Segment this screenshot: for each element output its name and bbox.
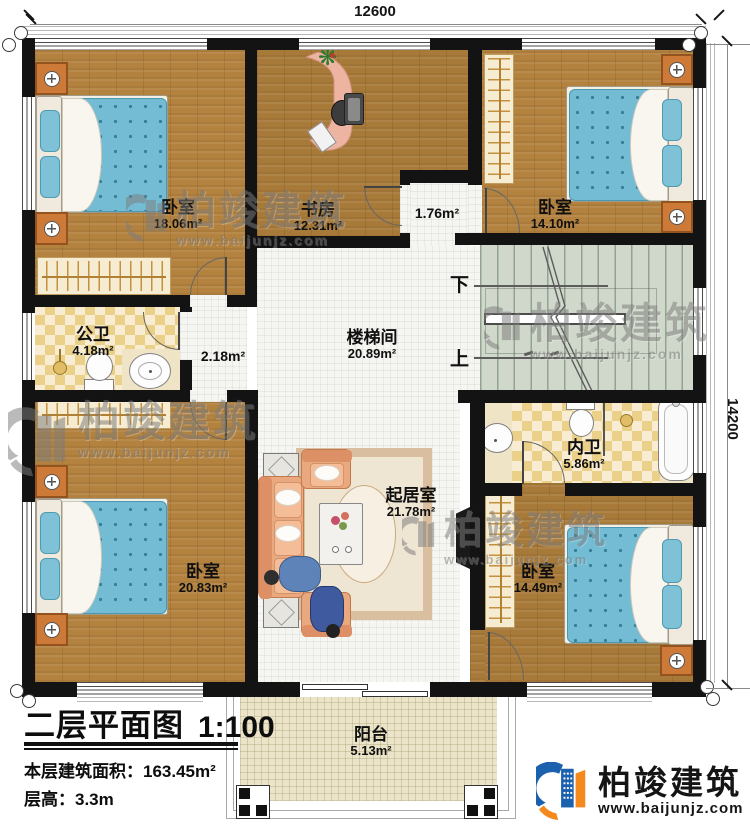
lamp-icon — [44, 221, 60, 237]
door-opening — [190, 295, 227, 307]
wardrobe-rail — [42, 414, 166, 416]
window — [693, 403, 706, 473]
pillow — [40, 558, 60, 600]
door-opening — [468, 185, 482, 233]
room-label-study: 书房 12.31m² — [268, 200, 368, 233]
wardrobe-bedroom-bl — [37, 399, 171, 429]
toilet-bowl — [569, 409, 594, 437]
column-mark — [484, 805, 495, 816]
room-label-stairwell: 楼梯间 20.89m² — [322, 328, 422, 361]
bathtub — [658, 395, 695, 481]
monitor — [344, 93, 364, 125]
column-mark — [256, 805, 267, 816]
room-area: 5.86m² — [544, 457, 624, 471]
room-area: 5.13m² — [321, 744, 421, 758]
bathtub-basin — [664, 404, 688, 474]
corner-marker-icon — [2, 38, 16, 52]
room-label-public-bath: 公卫 4.18m² — [53, 325, 133, 358]
wardrobe-bedroom-tl — [37, 257, 171, 295]
lamp-icon — [44, 474, 60, 490]
brand-logo-icon — [536, 762, 592, 820]
room-name: 卧室 — [505, 198, 605, 217]
plant-flower-dot — [330, 53, 335, 58]
room-name: 卧室 — [128, 198, 228, 217]
column-mark — [239, 805, 250, 816]
person-head — [326, 624, 340, 638]
room-area: 12.31m² — [268, 219, 368, 233]
drawing-title: 二层平面图 — [24, 700, 184, 745]
wall-interior — [565, 483, 706, 496]
window-sill-band-top — [22, 26, 706, 38]
room-label-bedroom-tr: 卧室 14.10m² — [505, 198, 605, 231]
dimension-line-right — [727, 45, 728, 688]
room-area: 14.10m² — [505, 217, 605, 231]
room-label-balcony: 阳台 5.13m² — [321, 725, 421, 758]
balcony-column — [236, 785, 270, 819]
floor-threshold-bedroom-br — [470, 630, 485, 682]
window — [527, 682, 652, 697]
title-block-row: 二层平面图 1:100 — [24, 700, 275, 745]
room-area: 18.06m² — [128, 217, 228, 231]
flower-dot — [339, 522, 347, 530]
wall-interior — [455, 233, 706, 245]
room-name: 书房 — [268, 200, 368, 219]
dimension-height: 14200 — [723, 389, 741, 449]
pillow — [662, 585, 682, 629]
sink — [129, 353, 171, 389]
window-sill-band-right — [706, 43, 716, 683]
wall-interior — [458, 390, 706, 403]
wardrobe-bedroom-br — [485, 488, 515, 628]
room-label-living-room: 起居室 21.78m² — [361, 486, 461, 519]
dimension-width: 12600 — [300, 3, 450, 20]
room-label-hall-small: 1.76m² — [406, 206, 468, 220]
wall-interior — [245, 390, 258, 684]
door-opening — [190, 390, 227, 402]
sink-drain-dot — [149, 370, 152, 373]
floor-height-label: 层高： — [24, 790, 75, 809]
room-area: 4.18m² — [53, 344, 133, 358]
nightstand — [35, 465, 68, 498]
dimension-line-top — [30, 24, 702, 25]
nightstand — [660, 645, 693, 676]
room-area: 2.18m² — [192, 349, 254, 363]
stair-up-label: 上 — [450, 344, 469, 371]
lamp-icon — [44, 71, 60, 87]
room-area: 1.76m² — [406, 206, 468, 220]
floor-area-label: 本层建筑面积： — [24, 762, 143, 781]
double-bed-bedroom-bl — [35, 498, 168, 615]
corner-marker-icon — [10, 684, 24, 698]
window — [22, 97, 35, 210]
throw-pillow — [275, 489, 301, 506]
nightstand — [35, 613, 68, 646]
wall-interior — [245, 50, 257, 307]
door-leaf — [488, 632, 490, 680]
window — [22, 313, 35, 380]
person-lying — [279, 556, 321, 592]
nightstand — [35, 62, 68, 95]
lamp-icon — [669, 62, 685, 78]
room-label-bedroom-br: 卧室 14.49m² — [488, 562, 588, 595]
window — [693, 527, 706, 640]
room-label-hall-mid: 2.18m² — [192, 349, 254, 363]
corner-marker-icon — [694, 26, 708, 40]
room-name: 楼梯间 — [322, 328, 422, 347]
coffee-table — [319, 503, 363, 565]
pillow — [40, 512, 60, 554]
nightstand — [661, 201, 693, 233]
armchair — [301, 449, 351, 489]
throw-pillow — [314, 465, 340, 481]
flower-dot — [341, 512, 349, 520]
window — [693, 88, 706, 200]
dimension-tick — [695, 13, 706, 24]
stair-break-line — [480, 243, 695, 393]
floor-stairwell-hall — [257, 246, 482, 392]
window-sill-band-bottom-right — [527, 697, 652, 704]
room-label-bedroom-bl: 卧室 20.83m² — [153, 562, 253, 595]
pillow — [662, 539, 682, 583]
corner-marker-icon — [706, 692, 720, 706]
title-underline-thin — [24, 748, 238, 750]
column-mark — [467, 805, 478, 816]
drawing-scale: 1:100 — [198, 711, 275, 745]
lamp-icon — [669, 209, 685, 225]
door-leaf — [522, 441, 524, 484]
door-leaf — [364, 186, 402, 188]
door-leaf — [178, 312, 180, 350]
brand-url: www.baijunjz.com — [598, 800, 743, 817]
room-label-inner-bath: 内卫 5.86m² — [544, 438, 624, 471]
title-underline-thick — [24, 742, 238, 746]
room-area: 21.78m² — [361, 505, 461, 519]
pillow — [662, 145, 682, 187]
side-table — [263, 596, 299, 628]
cup — [345, 546, 352, 553]
corner-tick-icon — [713, 9, 724, 20]
room-area: 20.83m² — [153, 581, 253, 595]
room-name: 内卫 — [544, 438, 624, 457]
lamp-icon — [44, 622, 60, 638]
floor-drain-icon — [53, 361, 67, 375]
sink-drain-dot — [494, 439, 497, 442]
armchair-backrest — [302, 450, 352, 462]
pillow — [40, 156, 60, 198]
room-name: 起居室 — [361, 486, 461, 505]
window — [77, 682, 203, 697]
corner-marker-icon — [682, 38, 696, 52]
pillow — [662, 99, 682, 141]
cup — [332, 546, 339, 553]
throw-pillow — [275, 525, 301, 542]
room-name: 公卫 — [53, 325, 133, 344]
wardrobe-bedroom-tr — [484, 54, 514, 184]
person-sitting — [310, 586, 344, 632]
room-area: 14.49m² — [488, 581, 588, 595]
floor-threshold-inner-bath — [522, 483, 565, 496]
wall-interior — [470, 483, 522, 496]
wall-interior — [257, 236, 402, 248]
window — [299, 38, 430, 50]
wardrobe-rail — [42, 276, 166, 278]
double-bed-bedroom-tl — [35, 95, 168, 213]
monitor-screen — [348, 98, 360, 121]
door-opening — [180, 312, 192, 360]
door-leaf — [225, 257, 227, 295]
door-leaf — [225, 402, 227, 440]
sink — [481, 423, 513, 453]
pillow — [40, 110, 60, 152]
lamp-icon — [669, 653, 685, 669]
window — [693, 288, 706, 355]
door-leaf — [485, 188, 487, 233]
side-table-inlay — [268, 599, 295, 626]
corner-marker-icon — [14, 26, 28, 40]
nightstand — [661, 54, 693, 85]
floor-height-line: 层高：3.3m — [24, 785, 114, 810]
room-label-bedroom-tl: 卧室 18.06m² — [128, 198, 228, 231]
room-name: 阳台 — [321, 725, 421, 744]
wall-interior — [470, 390, 485, 630]
floor-drain-icon — [620, 414, 633, 427]
column-mark — [239, 788, 250, 799]
stair-down-label: 下 — [450, 270, 469, 297]
column-mark — [484, 788, 495, 799]
nightstand — [35, 212, 68, 245]
brand-name: 柏竣建筑 — [598, 766, 742, 799]
wardrobe-rail — [499, 59, 501, 179]
balcony-column — [464, 785, 498, 819]
window — [522, 38, 655, 50]
room-name: 卧室 — [488, 562, 588, 581]
floor-plan: ❋ — [0, 0, 750, 833]
wardrobe-rail — [500, 493, 502, 623]
sliding-door-panel — [362, 691, 428, 697]
floor-height-value: 3.3m — [75, 790, 114, 809]
window — [35, 38, 207, 50]
sliding-door-panel — [302, 684, 368, 690]
window — [22, 502, 35, 613]
wall-interior — [468, 50, 482, 185]
room-name: 卧室 — [153, 562, 253, 581]
double-bed-bedroom-tr — [566, 86, 693, 202]
person-head — [264, 570, 279, 585]
floor-area-line: 本层建筑面积：163.45m² — [24, 757, 216, 782]
room-area: 20.89m² — [322, 347, 422, 361]
floor-area-value: 163.45m² — [143, 762, 216, 781]
wall-interior — [410, 170, 468, 183]
